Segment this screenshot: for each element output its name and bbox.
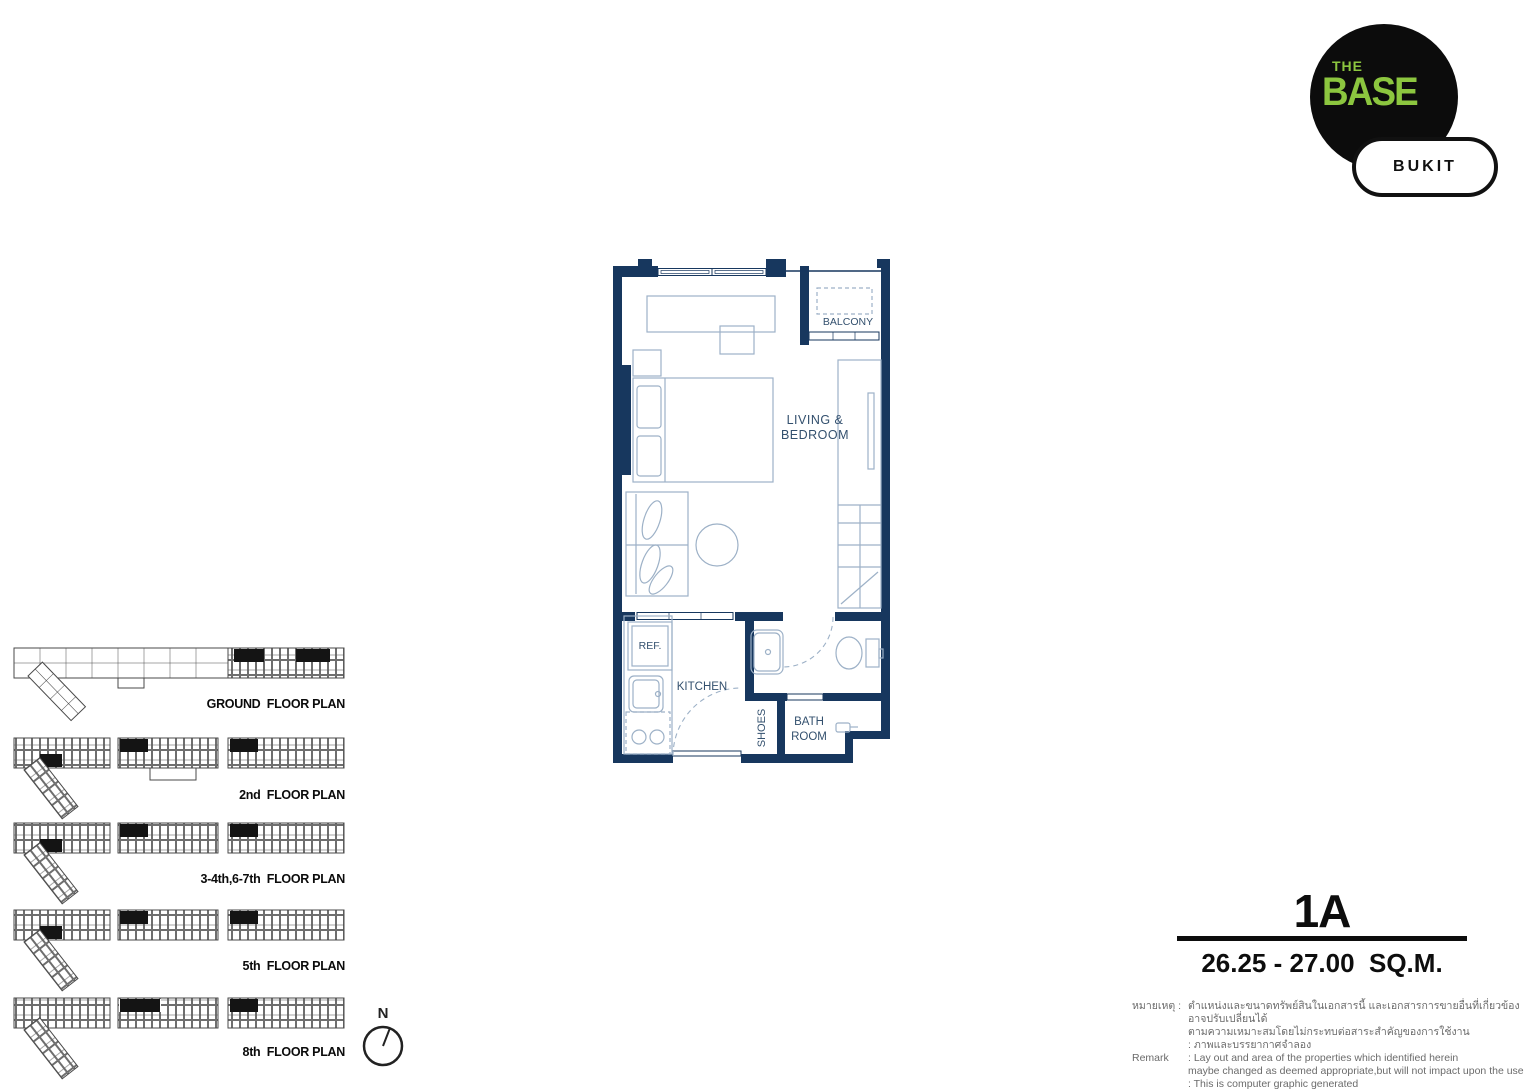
remark-en-line: : Lay out and area of the properties whi… [1188,1052,1524,1065]
mid-floors-plan-label: 3-4th,6-7th FLOOR PLAN [0,872,345,886]
north-compass: N [352,1002,414,1074]
refrigerator-label: REF. [639,640,662,652]
remark-en-row: Remark : Lay out and area of the propert… [1132,1052,1524,1091]
eighth-floor-mini-plan [14,998,344,1079]
bathroom-label-line2: ROOM [791,731,827,743]
living-bedroom-label-line1: LIVING & [787,413,844,427]
second-floor-mini-plan [14,738,344,819]
remark-block: หมายเหตุ : ตำแหน่งและขนาดทรัพย์สินในเอกส… [1132,1000,1524,1091]
compass-needle [383,1028,390,1046]
second-floor-plan-label: 2nd FLOOR PLAN [0,788,345,802]
remark-thai-label: หมายเหตุ : [1132,1000,1184,1052]
plan-windows [637,269,881,757]
unit-type-code: 1A [1177,884,1467,938]
north-label: N [378,1005,389,1022]
kitchen-label: KITCHEN [677,681,727,693]
eighth-floor-plan-label: 8th FLOOR PLAN [0,1045,345,1059]
remark-thai-lines: ตำแหน่งและขนาดทรัพย์สินในเอกสารนี้ และเอ… [1188,1000,1524,1052]
project-badge: BUKIT [1352,137,1498,197]
remark-thai-line: ตามความเหมาะสมโดยไม่กระทบต่อสาระสำคัญของ… [1188,1026,1524,1039]
shoes-label: SHOES [756,709,768,748]
remark-thai-row: หมายเหตุ : ตำแหน่งและขนาดทรัพย์สินในเอกส… [1132,1000,1524,1052]
floorplan-brochure-page: { "logo": { "the": "THE", "base": "BASE"… [0,0,1526,1080]
fifth-floor-plan-label: 5th FLOOR PLAN [0,959,345,973]
remark-en-line: maybe changed as deemed appropriate,but … [1188,1065,1524,1078]
bathroom-label-line1: BATH [794,716,824,728]
living-bedroom-label-line2: BEDROOM [781,428,849,442]
remark-en-label: Remark [1132,1052,1184,1091]
remark-en-lines: : Lay out and area of the properties whi… [1188,1052,1524,1091]
remark-thai-line: ตำแหน่งและขนาดทรัพย์สินในเอกสารนี้ และเอ… [1188,1000,1524,1026]
brand-base-text: BASE [1322,70,1417,115]
fifth-floor-mini-plan [14,910,344,991]
unit-1a-floor-plan: LIVING & BEDROOM BALCONY KITCHEN REF. BA… [600,255,900,780]
ground-floor-plan-label: GROUND FLOOR PLAN [0,697,345,711]
remark-thai-line: : ภาพและบรรยากาศจำลอง [1188,1039,1524,1052]
unit-divider-rule [1177,936,1467,941]
unit-area-range: 26.25 - 27.00 SQ.M. [1177,948,1467,979]
mid-floor-mini-plan [14,823,344,904]
balcony-label: BALCONY [823,316,873,328]
